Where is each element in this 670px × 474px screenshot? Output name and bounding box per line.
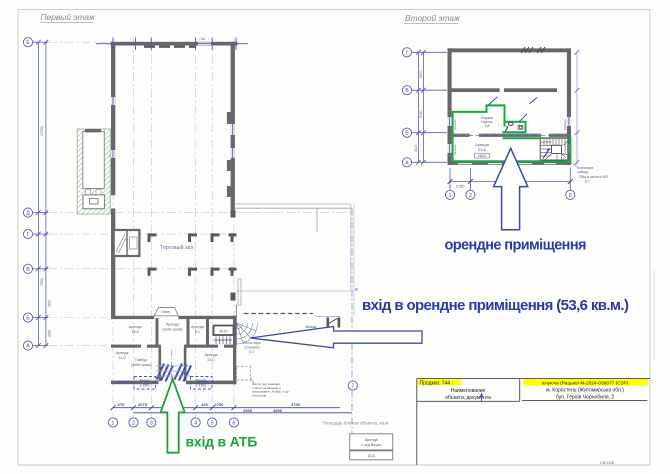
svg-text:Наименование: Наименование (451, 388, 486, 394)
svg-text:3,8: 3,8 (485, 124, 490, 128)
svg-text:(мохна): (мохна) (453, 119, 457, 130)
svg-text:5,7: 5,7 (585, 180, 590, 184)
svg-text:м. Коростень (Житомирська обл.: м. Коростень (Житомирська обл.) (546, 387, 624, 393)
svg-text:2810: 2810 (48, 330, 52, 337)
svg-text:7500: 7500 (40, 278, 44, 286)
svg-text:5,1: 5,1 (195, 330, 200, 334)
svg-text:с атд Взори: с атд Взори (361, 443, 381, 447)
svg-text:МОП: МОП (219, 330, 228, 334)
svg-text:4: 4 (194, 421, 197, 427)
svg-text:Вело-парк: Вело-парк (243, 341, 261, 345)
svg-text:Второй этаж: Второй этаж (405, 13, 461, 23)
svg-text:Въезд: Въезд (140, 379, 151, 383)
svg-text:(завод): (завод) (577, 170, 588, 174)
svg-text:Площадь блоков объекта, кв.м: Площадь блоков объекта, кв.м (323, 421, 389, 426)
svg-text:270: 270 (118, 402, 125, 407)
svg-text:4750: 4750 (291, 402, 301, 407)
svg-text:1: 1 (449, 193, 452, 199)
svg-text:2750: 2750 (215, 402, 225, 407)
svg-text:(мохна): (мохна) (453, 144, 457, 155)
svg-text:1750: 1750 (456, 184, 466, 189)
svg-text:2965: 2965 (243, 408, 253, 413)
svg-text:Аренда: Аренда (129, 325, 143, 329)
svg-text:Б: Б (405, 131, 409, 137)
svg-text:7: 7 (351, 384, 354, 390)
svg-text:В: В (405, 88, 409, 94)
svg-text:2: 2 (132, 421, 135, 427)
svg-text:2810: 2810 (48, 300, 52, 307)
svg-text:бул. Героїв Чорнобиля, 2: бул. Героїв Чорнобиля, 2 (556, 394, 614, 400)
svg-text:Торговый зал: Торговый зал (160, 244, 194, 251)
svg-text:орендне приміщення: орендне приміщення (445, 238, 586, 254)
svg-text:пешеходн.: пешеходн. (252, 393, 267, 397)
svg-text:2: 2 (469, 193, 472, 199)
svg-text:Г: Г (406, 50, 409, 56)
svg-text:6а: 6а (201, 37, 205, 41)
svg-text:Тамбур: Тамбур (135, 358, 148, 362)
svg-text:(-150): (-150) (196, 384, 206, 388)
svg-text:(Схемат): (Схемат) (244, 346, 259, 350)
svg-text:Первый этаж: Первый этаж (41, 12, 97, 22)
svg-text:вхід в АТБ: вхід в АТБ (186, 434, 258, 450)
svg-text:5: 5 (211, 421, 214, 427)
svg-text:Продмаг. 744: Продмаг. 744 (420, 380, 451, 386)
svg-text:5,7: 5,7 (249, 350, 254, 354)
svg-text:340: 340 (201, 402, 208, 407)
svg-text:(-150): (-150) (140, 384, 150, 388)
svg-text:6: 6 (232, 421, 235, 427)
svg-text:53,6: 53,6 (368, 454, 375, 458)
svg-text:5040: 5040 (419, 110, 423, 118)
svg-text:А: А (405, 160, 409, 166)
svg-text:Общ в частоте 900: Общ в частоте 900 (579, 175, 608, 179)
svg-text:Аренда: Аренда (116, 351, 130, 355)
svg-text:15,8: 15,8 (131, 330, 138, 334)
svg-text:17050: 17050 (40, 126, 44, 136)
svg-text:існуюча (Рацької-М-2024-036877: існуюча (Рацької-М-2024-036877 (СЗР) (542, 381, 629, 387)
svg-text:14,3: 14,3 (118, 356, 125, 360)
svg-text:53,6: 53,6 (478, 147, 487, 152)
svg-text:В: В (26, 267, 30, 273)
svg-text:Б: Б (26, 316, 30, 322)
svg-text:Аренда: Аренда (205, 353, 219, 357)
svg-text:объекта, документа: объекта, документа (445, 395, 491, 401)
svg-text:Навес: Навес (161, 310, 171, 314)
svg-text:Д: Д (26, 211, 30, 217)
svg-text:вхід в орендне приміщення (53,: вхід в орендне приміщення (53,6 кв.м.) (362, 297, 629, 314)
svg-text:3120: 3120 (414, 144, 418, 152)
svg-text:1: 1 (112, 421, 115, 427)
svg-text:(себе храм): (себе храм) (163, 328, 183, 332)
svg-text:4600: 4600 (478, 153, 488, 158)
svg-text:(мохна): (мохна) (563, 119, 567, 130)
svg-text:Г: Г (27, 232, 30, 238)
svg-text:(себе храм): (себе храм) (131, 363, 151, 367)
svg-text:А: А (26, 344, 30, 350)
svg-text:4950: 4950 (273, 408, 283, 413)
svg-text:Аренда: Аренда (166, 323, 180, 327)
svg-text:3900: 3900 (419, 70, 423, 78)
svg-text:3075: 3075 (138, 402, 148, 407)
svg-text:Аренда: Аренда (365, 438, 379, 442)
svg-text:1 М 1:100: 1 М 1:100 (600, 461, 614, 465)
svg-text:Въезд: Въезд (196, 379, 207, 383)
svg-text:6: 6 (569, 193, 572, 199)
svg-text:Аренда: Аренда (191, 325, 205, 329)
svg-text:Е: Е (26, 40, 30, 46)
svg-text:3: 3 (150, 421, 153, 427)
svg-text:(мохна): (мохна) (563, 144, 567, 155)
svg-text:24,0: 24,0 (207, 358, 214, 362)
